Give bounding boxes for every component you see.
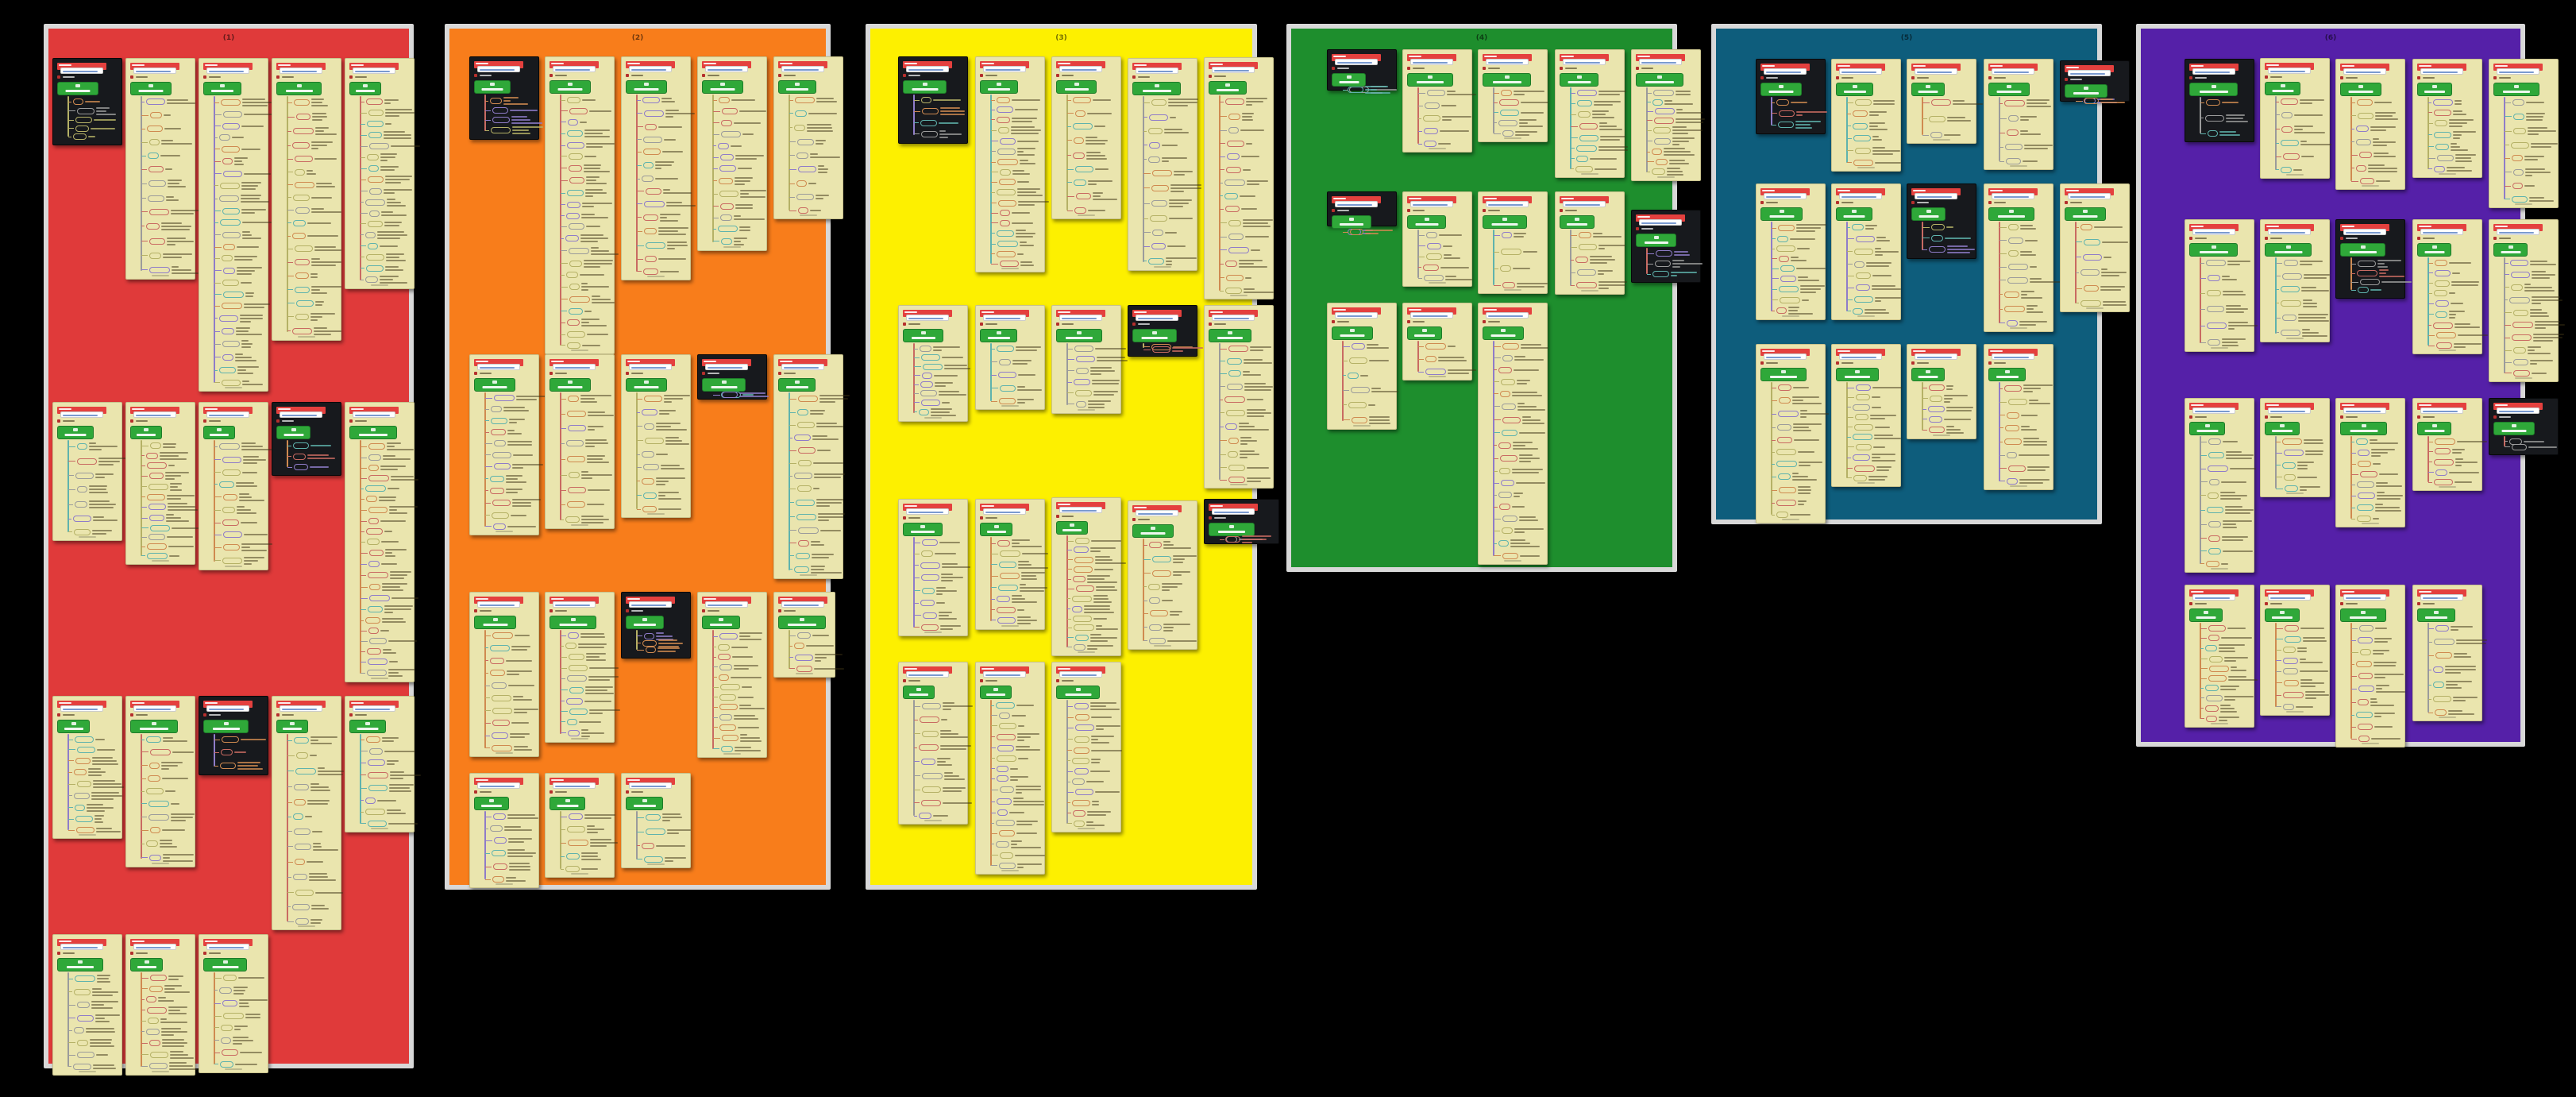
mindmap-card[interactable] [1402, 191, 1472, 287]
branch-node[interactable] [796, 180, 807, 187]
branch-node[interactable] [1929, 116, 1945, 122]
branch-node[interactable] [146, 1029, 160, 1035]
branch-node[interactable] [222, 280, 239, 286]
branch-node[interactable] [223, 292, 244, 298]
root-node[interactable] [203, 82, 241, 95]
branch-node[interactable] [1225, 288, 1242, 294]
header-link-field[interactable] [1563, 201, 1606, 207]
branch-node[interactable] [367, 670, 387, 676]
branch-node[interactable] [1149, 597, 1160, 604]
branch-node[interactable] [569, 108, 588, 114]
branch-node[interactable] [1228, 234, 1244, 240]
mindmap-card[interactable] [1128, 305, 1197, 357]
mindmap-card[interactable] [697, 592, 767, 758]
header-link-field[interactable] [1839, 68, 1882, 75]
mindmap-card[interactable] [1831, 183, 1901, 320]
branch-node[interactable] [492, 876, 504, 883]
branch-node[interactable] [148, 534, 165, 540]
branch-node[interactable] [148, 153, 159, 159]
branch-node[interactable] [1074, 346, 1093, 352]
branch-node[interactable] [1500, 391, 1510, 397]
branch-node[interactable] [75, 126, 89, 132]
branch-node[interactable] [150, 975, 167, 981]
mindmap-card[interactable] [469, 773, 539, 888]
branch-node[interactable] [222, 354, 233, 361]
header-link-field[interactable] [906, 671, 949, 678]
branch-node[interactable] [920, 381, 933, 388]
branch-node[interactable] [491, 127, 511, 133]
branch-node[interactable] [1501, 480, 1514, 486]
header-link-field[interactable] [1915, 193, 1957, 199]
branch-node[interactable] [997, 617, 1016, 624]
branch-node[interactable] [491, 418, 507, 424]
branch-node[interactable] [798, 166, 816, 172]
mindmap-card[interactable] [1327, 303, 1397, 430]
branch-node[interactable] [997, 159, 1018, 165]
branch-node[interactable] [569, 709, 588, 715]
branch-node[interactable] [223, 171, 242, 177]
branch-node[interactable] [222, 736, 239, 743]
branch-node[interactable] [1501, 90, 1512, 96]
branch-node[interactable] [719, 694, 736, 701]
header-link-field[interactable] [906, 66, 949, 72]
branch-node[interactable] [569, 284, 580, 290]
branch-node[interactable] [644, 110, 664, 117]
mindmap-card[interactable] [199, 58, 268, 392]
branch-node[interactable] [1502, 527, 1513, 534]
mindmap-card[interactable] [1051, 662, 1121, 832]
branch-node[interactable] [367, 154, 379, 160]
header-link-field[interactable] [553, 601, 596, 608]
branch-node[interactable] [1425, 356, 1436, 362]
branch-node[interactable] [568, 425, 586, 431]
branch-node[interactable] [1150, 215, 1167, 222]
branch-node[interactable] [368, 518, 379, 524]
root-node[interactable] [1636, 73, 1683, 87]
branch-node[interactable] [720, 203, 734, 210]
root-node[interactable] [1056, 686, 1100, 699]
branch-node[interactable] [1423, 265, 1439, 271]
root-node[interactable] [130, 720, 178, 733]
header-link-field[interactable] [206, 411, 249, 418]
branch-node[interactable] [219, 134, 230, 141]
branch-node[interactable] [1653, 90, 1674, 96]
branch-node[interactable] [492, 732, 508, 739]
branch-node[interactable] [1075, 714, 1089, 720]
branch-node[interactable] [1502, 282, 1515, 288]
branch-node[interactable] [1000, 138, 1016, 145]
mindmap-card[interactable] [1478, 49, 1548, 142]
branch-node[interactable] [150, 112, 162, 118]
branch-node[interactable] [77, 1002, 90, 1008]
branch-node[interactable] [1152, 570, 1171, 577]
branch-node[interactable] [223, 268, 235, 274]
branch-node[interactable] [569, 223, 584, 230]
branch-node[interactable] [292, 142, 310, 149]
branch-node[interactable] [369, 211, 380, 217]
branch-node[interactable] [365, 798, 376, 804]
branch-node[interactable] [567, 202, 580, 208]
branch-node[interactable] [1852, 224, 1864, 230]
root-node[interactable] [1560, 215, 1595, 229]
root-node[interactable] [203, 426, 235, 439]
branch-node[interactable] [368, 443, 385, 450]
root-node[interactable] [1911, 83, 1945, 96]
branch-node[interactable] [369, 748, 383, 755]
branch-node[interactable] [719, 633, 738, 639]
header-link-field[interactable] [353, 705, 395, 712]
branch-node[interactable] [1575, 257, 1588, 263]
branch-node[interactable] [645, 124, 657, 130]
branch-node[interactable] [368, 785, 388, 791]
mindmap-card[interactable] [545, 56, 615, 354]
branch-node[interactable] [148, 1018, 159, 1024]
branch-node[interactable] [997, 97, 1010, 103]
mindmap-card[interactable] [1756, 59, 1826, 134]
branch-node[interactable] [798, 207, 808, 214]
branch-node[interactable] [797, 422, 815, 428]
branch-node[interactable] [721, 131, 741, 137]
branch-node[interactable] [1656, 250, 1672, 257]
header-link-field[interactable] [1486, 312, 1529, 319]
mindmap-card[interactable] [199, 402, 268, 570]
branch-node[interactable] [1500, 110, 1519, 116]
branch-node[interactable] [1227, 384, 1243, 390]
branch-node[interactable] [1780, 265, 1795, 272]
root-node[interactable] [702, 378, 746, 392]
branch-node[interactable] [1000, 261, 1019, 267]
branch-node[interactable] [295, 890, 314, 896]
branch-node[interactable] [1075, 635, 1089, 641]
branch-node[interactable] [295, 844, 311, 850]
branch-node[interactable] [150, 442, 161, 449]
branch-node[interactable] [1425, 102, 1440, 109]
branch-node[interactable] [1149, 624, 1162, 631]
branch-node[interactable] [1075, 166, 1093, 172]
branch-node[interactable] [74, 1027, 84, 1033]
branch-node[interactable] [997, 607, 1016, 613]
branch-node[interactable] [796, 194, 814, 200]
branch-node[interactable] [492, 500, 511, 506]
branch-node[interactable] [568, 632, 579, 639]
branch-node[interactable] [221, 1037, 231, 1044]
mindmap-card[interactable] [1631, 210, 1701, 283]
branch-node[interactable] [1226, 410, 1245, 416]
branch-node[interactable] [2008, 238, 2023, 244]
header-link-field[interactable] [705, 364, 748, 370]
branch-node[interactable] [222, 123, 240, 129]
branch-node[interactable] [148, 504, 166, 510]
branch-node[interactable] [2008, 250, 2019, 257]
branch-node[interactable] [368, 132, 382, 138]
branch-node[interactable] [645, 438, 664, 444]
mindmap-card[interactable] [898, 499, 968, 636]
branch-node[interactable] [368, 507, 388, 513]
branch-node[interactable] [491, 406, 502, 412]
branch-node[interactable] [798, 527, 819, 534]
mindmap-card[interactable] [1402, 303, 1472, 380]
branch-node[interactable] [997, 766, 1008, 772]
branch-node[interactable] [292, 328, 312, 334]
branch-node[interactable] [1498, 540, 1509, 547]
branch-node[interactable] [1072, 800, 1090, 806]
branch-node[interactable] [77, 443, 87, 450]
branch-node[interactable] [368, 606, 383, 612]
branch-node[interactable] [1149, 638, 1166, 644]
root-node[interactable] [130, 426, 162, 439]
root-node[interactable] [57, 720, 90, 733]
branch-node[interactable] [365, 232, 376, 238]
branch-node[interactable] [369, 595, 390, 601]
branch-node[interactable] [149, 253, 161, 259]
branch-node[interactable] [1074, 379, 1090, 385]
branch-node[interactable] [1148, 258, 1164, 265]
branch-node[interactable] [1576, 156, 1588, 162]
root-node[interactable] [1636, 234, 1676, 247]
branch-node[interactable] [295, 287, 310, 293]
branch-node[interactable] [997, 241, 1018, 247]
branch-node[interactable] [998, 200, 1016, 207]
branch-node[interactable] [997, 596, 1010, 602]
branch-node[interactable] [997, 798, 1012, 805]
branch-node[interactable] [720, 154, 734, 160]
branch-node[interactable] [368, 628, 379, 634]
branch-node[interactable] [149, 238, 165, 245]
branch-node[interactable] [1778, 122, 1794, 128]
branch-node[interactable] [150, 827, 160, 833]
mindmap-card[interactable] [975, 305, 1045, 410]
branch-node[interactable] [1655, 108, 1675, 114]
header-link-field[interactable] [477, 601, 520, 608]
branch-node[interactable] [1578, 111, 1591, 118]
branch-node[interactable] [923, 612, 937, 619]
branch-node[interactable] [147, 126, 163, 132]
branch-node[interactable] [219, 443, 240, 450]
branch-node[interactable] [1075, 538, 1089, 544]
branch-node[interactable] [1498, 120, 1517, 126]
branch-node[interactable] [997, 149, 1016, 155]
branch-node[interactable] [719, 724, 736, 731]
header-link-field[interactable] [1136, 315, 1178, 321]
branch-node[interactable] [1073, 616, 1092, 622]
branch-node[interactable] [1224, 396, 1245, 403]
branch-node[interactable] [1499, 504, 1510, 510]
branch-node[interactable] [1228, 220, 1241, 226]
branch-node[interactable] [492, 745, 512, 751]
header-link-field[interactable] [705, 601, 748, 608]
branch-node[interactable] [1073, 153, 1085, 159]
root-node[interactable] [130, 82, 172, 95]
branch-node[interactable] [295, 314, 309, 320]
branch-node[interactable] [1854, 296, 1873, 303]
branch-node[interactable] [721, 746, 733, 752]
branch-node[interactable] [1224, 193, 1238, 199]
branch-node[interactable] [1853, 123, 1868, 129]
branch-node[interactable] [222, 255, 233, 261]
branch-node[interactable] [1576, 282, 1597, 288]
branch-node[interactable] [1352, 417, 1367, 423]
mindmap-card[interactable] [52, 58, 122, 145]
branch-node[interactable] [568, 487, 586, 493]
branch-node[interactable] [494, 395, 515, 401]
branch-node[interactable] [73, 133, 87, 140]
branch-node[interactable] [293, 874, 307, 880]
branch-node[interactable] [1855, 99, 1872, 106]
branch-node[interactable] [1073, 97, 1091, 103]
branch-node[interactable] [1072, 758, 1089, 764]
branch-node[interactable] [719, 714, 732, 720]
branch-node[interactable] [1228, 247, 1249, 253]
branch-node[interactable] [75, 117, 92, 123]
branch-node[interactable] [999, 723, 1016, 729]
branch-node[interactable] [492, 850, 506, 856]
header-link-field[interactable] [1212, 508, 1255, 515]
branch-node[interactable] [1856, 284, 1870, 291]
header-link-field[interactable] [133, 705, 176, 712]
branch-node[interactable] [490, 98, 502, 104]
branch-node[interactable] [922, 108, 939, 114]
branch-node[interactable] [794, 473, 812, 479]
root-node[interactable] [1407, 326, 1442, 340]
root-node[interactable] [1483, 215, 1527, 229]
root-node[interactable] [903, 686, 935, 699]
header-link-field[interactable] [1335, 312, 1378, 319]
branch-node[interactable] [569, 687, 584, 693]
mindmap-card[interactable] [1631, 49, 1701, 181]
branch-node[interactable] [367, 539, 380, 545]
branch-node[interactable] [1228, 114, 1240, 120]
branch-node[interactable] [1655, 261, 1671, 267]
branch-node[interactable] [1423, 115, 1440, 122]
branch-node[interactable] [997, 117, 1010, 123]
root-node[interactable] [474, 80, 511, 94]
branch-node[interactable] [796, 666, 812, 672]
mindmap-card[interactable] [1984, 183, 2053, 332]
root-node[interactable] [1988, 207, 2034, 221]
branch-node[interactable] [1152, 170, 1172, 176]
branch-node[interactable] [1076, 401, 1086, 408]
root-node[interactable] [980, 329, 1017, 342]
branch-node[interactable] [75, 805, 85, 811]
mindmap-card[interactable] [773, 354, 843, 579]
root-node[interactable] [1132, 524, 1174, 538]
branch-node[interactable] [222, 232, 241, 238]
mindmap-card[interactable] [1051, 305, 1121, 414]
header-link-field[interactable] [206, 68, 249, 74]
header-link-field[interactable] [1915, 68, 1957, 75]
root-node[interactable] [1132, 82, 1181, 95]
branch-node[interactable] [1502, 430, 1517, 436]
branch-node[interactable] [490, 825, 503, 832]
branch-node[interactable] [997, 540, 1010, 547]
mindmap-card[interactable] [345, 58, 415, 289]
branch-node[interactable] [490, 488, 504, 494]
mindmap-card[interactable] [52, 402, 122, 541]
branch-node[interactable] [1425, 343, 1446, 350]
root-node[interactable] [203, 958, 247, 971]
branch-node[interactable] [492, 107, 508, 114]
branch-node[interactable] [296, 300, 314, 307]
branch-node[interactable] [292, 233, 306, 239]
branch-node[interactable] [295, 182, 314, 188]
root-node[interactable] [1988, 83, 2030, 96]
branch-node[interactable] [366, 496, 377, 502]
branch-node[interactable] [1076, 585, 1094, 592]
branch-node[interactable] [1150, 610, 1168, 616]
header-link-field[interactable] [60, 944, 103, 950]
branch-node[interactable] [999, 562, 1016, 568]
branch-node[interactable] [1427, 90, 1445, 96]
branch-node[interactable] [568, 840, 588, 846]
branch-node[interactable] [223, 111, 242, 118]
branch-node[interactable] [718, 143, 729, 149]
branch-node[interactable] [494, 463, 511, 469]
branch-node[interactable] [1000, 210, 1010, 216]
branch-node[interactable] [1074, 557, 1093, 563]
branch-node[interactable] [366, 254, 384, 261]
branch-node[interactable] [295, 272, 309, 279]
branch-node[interactable] [1854, 249, 1873, 255]
branch-node[interactable] [565, 516, 580, 523]
branch-node[interactable] [1654, 138, 1671, 145]
branch-node[interactable] [794, 435, 811, 441]
branch-node[interactable] [1502, 516, 1517, 522]
header-link-field[interactable] [1410, 59, 1453, 65]
branch-node[interactable] [368, 759, 385, 766]
header-link-field[interactable] [1136, 510, 1178, 516]
branch-node[interactable] [1777, 236, 1788, 242]
branch-node[interactable] [646, 242, 665, 249]
branch-node[interactable] [1151, 185, 1169, 191]
branch-node[interactable] [569, 296, 590, 303]
root-node[interactable] [276, 426, 310, 439]
branch-node[interactable] [1931, 235, 1943, 241]
mindmap-card[interactable] [1204, 57, 1274, 299]
branch-node[interactable] [295, 859, 305, 865]
branch-node[interactable] [1779, 286, 1799, 292]
root-node[interactable] [1760, 207, 1803, 221]
branch-node[interactable] [369, 143, 389, 149]
mindmap-card[interactable] [1555, 49, 1625, 178]
branch-node[interactable] [567, 97, 580, 103]
branch-node[interactable] [566, 213, 580, 219]
branch-node[interactable] [567, 719, 577, 725]
branch-node[interactable] [490, 476, 504, 482]
branch-node[interactable] [920, 600, 935, 606]
header-link-field[interactable] [705, 66, 748, 72]
branch-node[interactable] [148, 166, 164, 172]
branch-node[interactable] [1072, 778, 1085, 785]
branch-node[interactable] [492, 632, 513, 639]
branch-node[interactable] [722, 108, 738, 114]
root-node[interactable] [130, 958, 163, 971]
branch-node[interactable] [1502, 232, 1512, 238]
header-link-field[interactable] [1992, 68, 2034, 75]
branch-node[interactable] [719, 664, 732, 670]
branch-node[interactable] [798, 447, 816, 454]
branch-node[interactable] [920, 562, 940, 569]
branch-node[interactable] [1929, 246, 1945, 253]
root-node[interactable] [276, 82, 322, 95]
branch-node[interactable] [1000, 852, 1013, 859]
branch-node[interactable] [366, 528, 383, 535]
branch-node[interactable] [1498, 367, 1512, 373]
branch-node[interactable] [1000, 550, 1020, 557]
branch-node[interactable] [365, 276, 378, 283]
branch-node[interactable] [921, 800, 941, 806]
header-link-field[interactable] [1639, 59, 1682, 65]
branch-node[interactable] [219, 987, 232, 994]
